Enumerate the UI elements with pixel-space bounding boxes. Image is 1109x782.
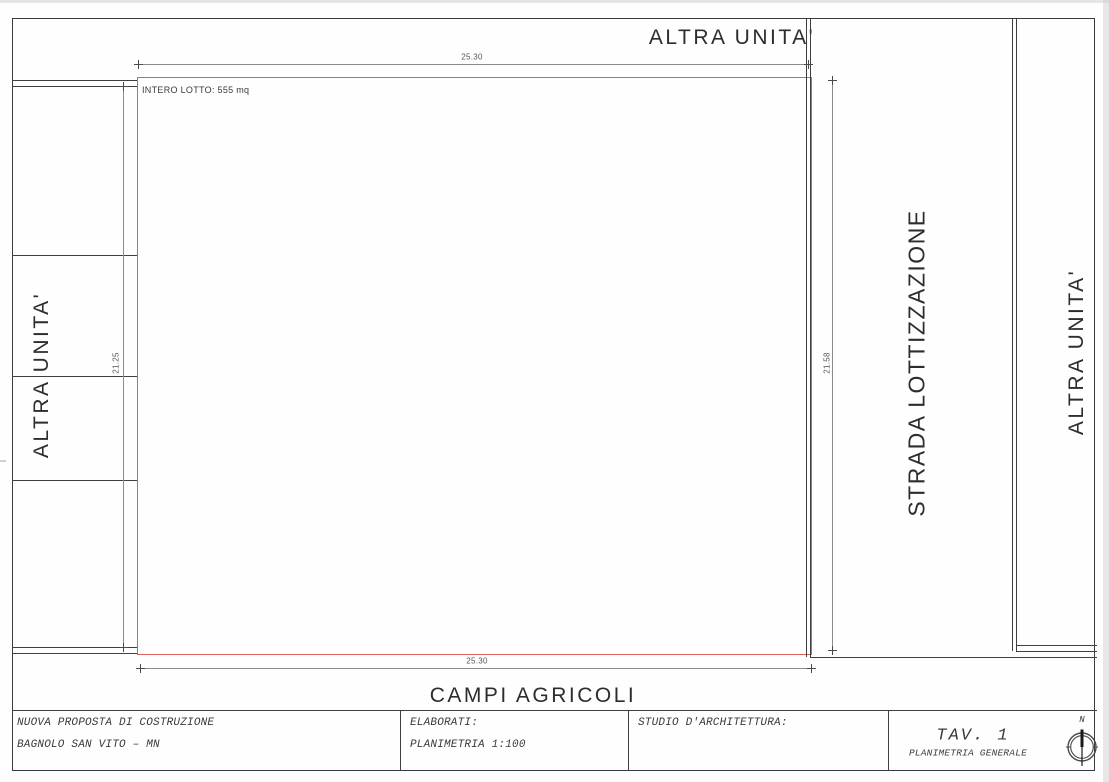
sheet-number: TAV. 1 — [936, 727, 1009, 746]
road-boundary-line — [1012, 18, 1013, 651]
lot-outline — [137, 77, 812, 655]
dim-tick — [807, 664, 816, 673]
scan-edge-top — [0, 0, 1109, 3]
dim-line-top — [138, 64, 808, 65]
dim-tick — [828, 76, 837, 85]
right-unit-bottom-line — [1016, 651, 1097, 652]
road-bottom-line — [810, 657, 1097, 658]
elaborati-value: PLANIMETRIA 1:100 — [410, 739, 526, 751]
scan-edge-right — [1103, 0, 1109, 782]
label-road: STRADA LOTTIZZAZIONE — [904, 209, 931, 516]
dim-tick — [828, 646, 837, 655]
lot-area-label: INTERO LOTTO: 555 mq — [142, 85, 249, 95]
road-boundary-line — [1016, 18, 1017, 651]
label-right-unit: ALTRA UNITA' — [1065, 269, 1089, 435]
dim-tick — [136, 664, 145, 673]
project-title-line2: BAGNOLO SAN VITO – MN — [17, 739, 160, 751]
dim-value-left: 21.25 — [112, 352, 121, 374]
road-boundary-line — [810, 18, 811, 657]
north-compass-icon — [1062, 710, 1102, 772]
label-left-unit: ALTRA UNITA' — [30, 292, 54, 458]
scan-artifact — [0, 460, 6, 462]
dim-line-right — [832, 80, 833, 650]
parcel-divider — [12, 255, 138, 256]
label-top-unit: ALTRA UNITA' — [649, 26, 815, 50]
dim-tick — [119, 643, 128, 652]
drawing-sheet: ALTRA UNITA' ALTRA UNITA' INTERO LOTTO: … — [0, 0, 1109, 782]
project-title-line1: NUOVA PROPOSTA DI COSTRUZIONE — [17, 717, 214, 729]
dim-tick — [804, 60, 813, 69]
dim-line-bottom — [140, 668, 811, 669]
dim-value-top: 25.30 — [461, 53, 483, 62]
right-unit-bottom-line — [1016, 645, 1097, 646]
studio-label: STUDIO D'ARCHITETTURA: — [638, 717, 788, 729]
dim-line-left — [123, 86, 124, 647]
dim-tick — [134, 60, 143, 69]
title-block-divider — [888, 710, 889, 771]
dim-value-bottom: 25.30 — [466, 657, 488, 666]
dim-tick — [119, 82, 128, 91]
title-block-divider — [628, 710, 629, 771]
dim-value-right: 21.58 — [823, 352, 832, 374]
title-block-divider — [400, 710, 401, 771]
parcel-divider — [12, 480, 138, 481]
label-fields: CAMPI AGRICOLI — [430, 684, 637, 708]
elaborati-label: ELABORATI: — [410, 717, 478, 729]
road-boundary-line — [806, 18, 807, 657]
parcel-bottom-line — [12, 653, 138, 654]
sheet-title: PLANIMETRIA GENERALE — [909, 748, 1027, 759]
title-block-top-line — [12, 710, 1097, 711]
